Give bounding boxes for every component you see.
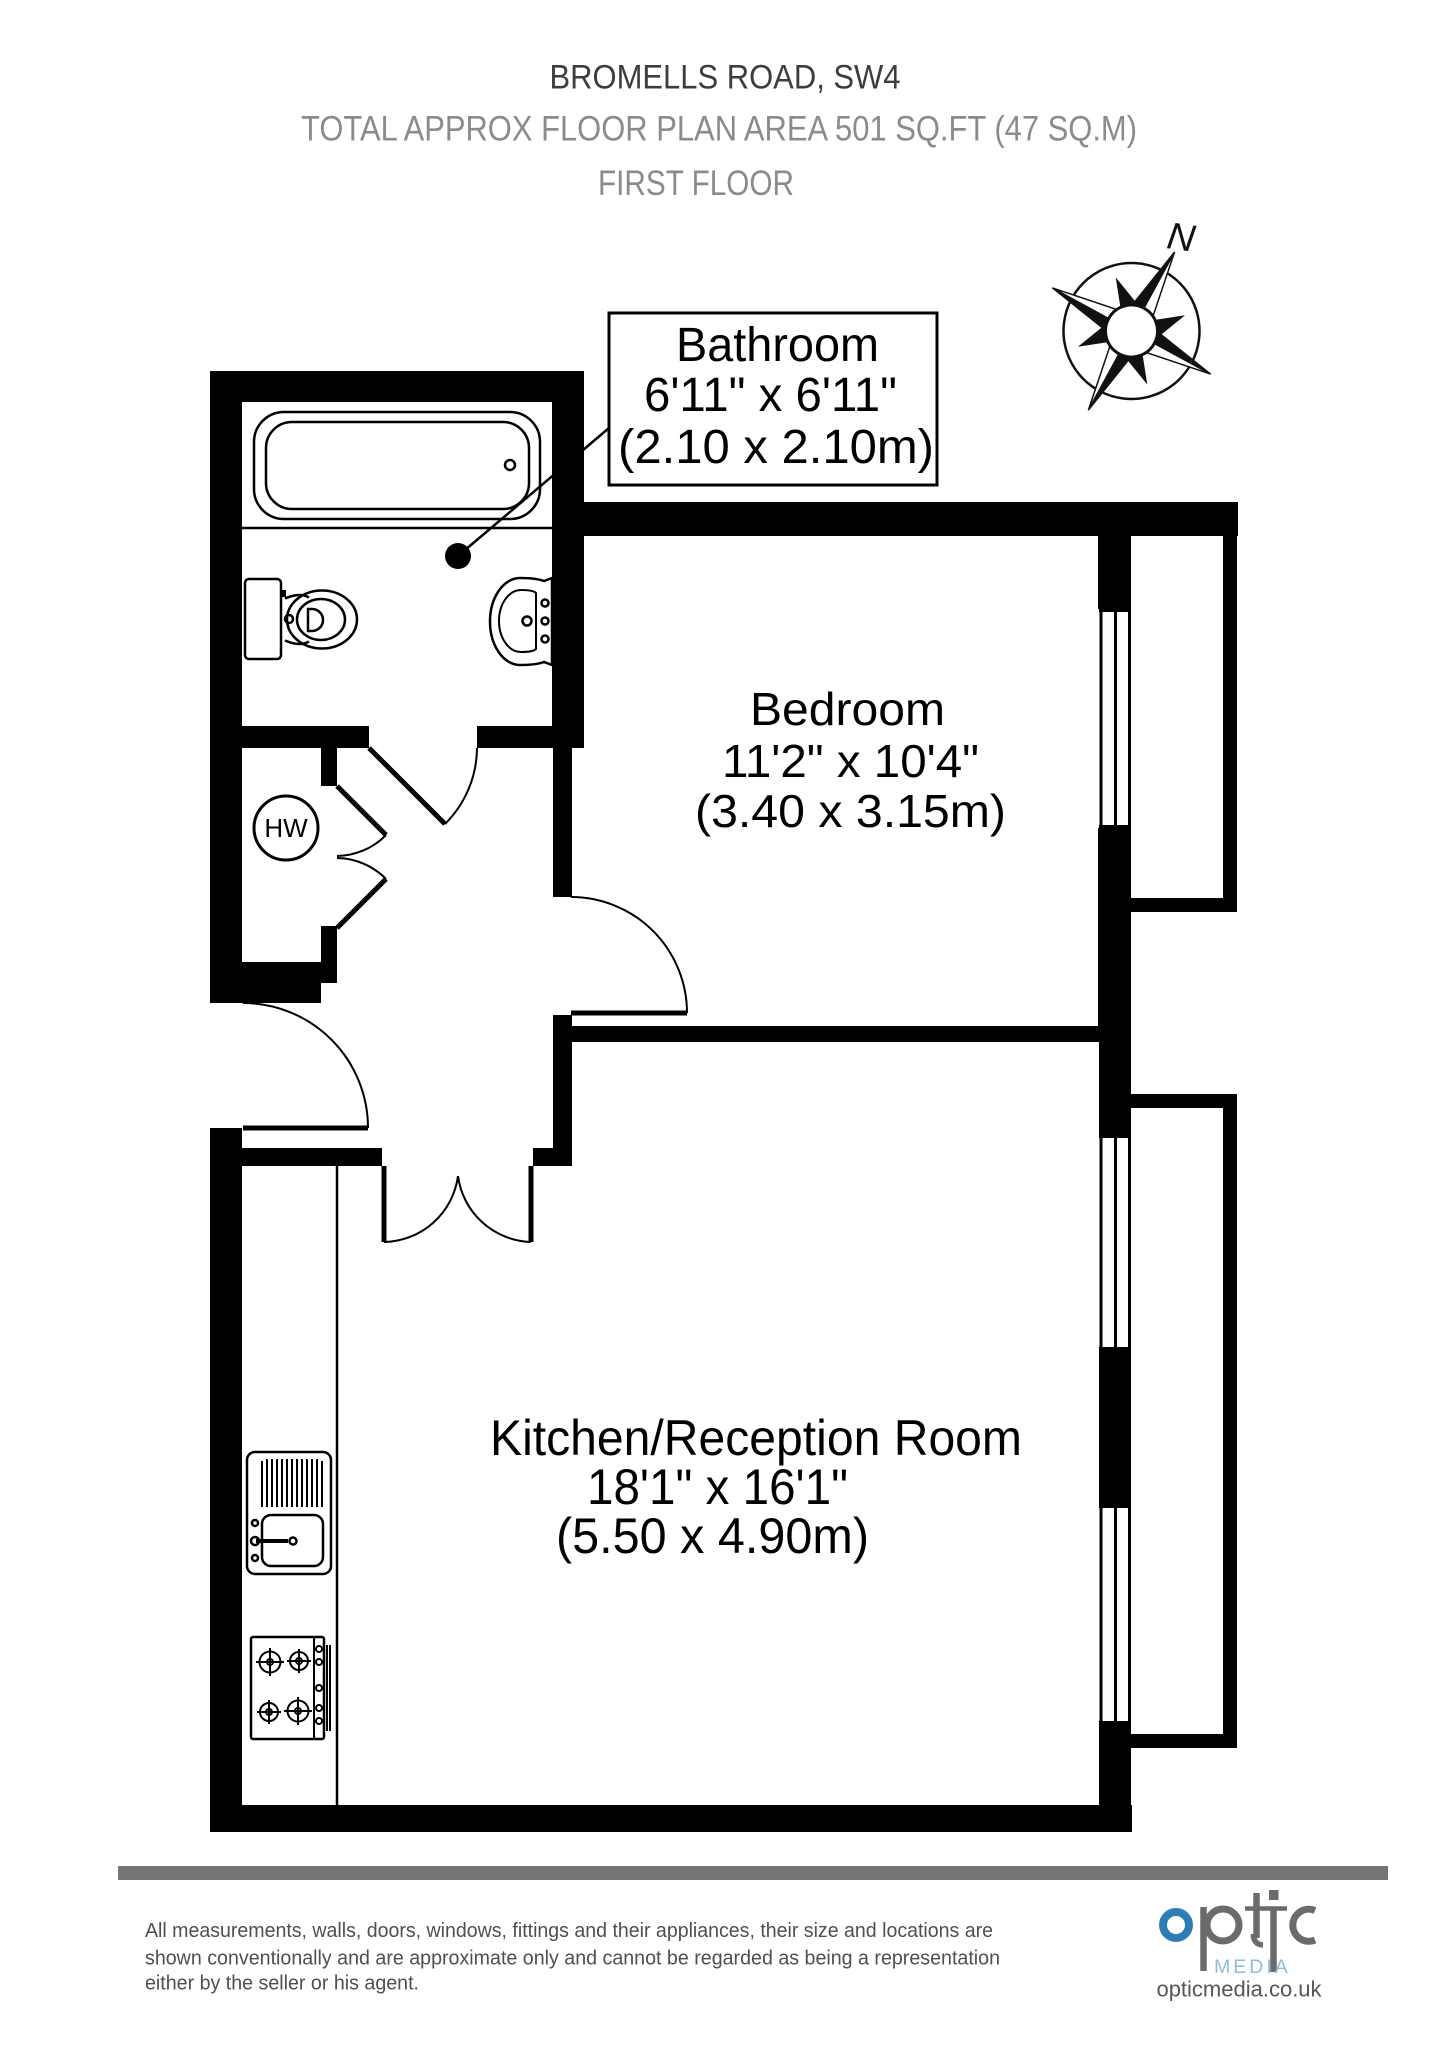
svg-text:TOTAL APPROX FLOOR PLAN AREA 5: TOTAL APPROX FLOOR PLAN AREA 501 SQ.FT (… [301,110,1137,149]
svg-text:opticmedia.co.uk: opticmedia.co.uk [1156,1977,1322,2002]
svg-text:BROMELLS ROAD, SW4: BROMELLS ROAD, SW4 [550,59,901,97]
svg-text:(3.40 x 3.15m): (3.40 x 3.15m) [695,785,1006,837]
svg-text:(5.50 x 4.90m): (5.50 x 4.90m) [556,1508,869,1564]
svg-text:11'2" x 10'4": 11'2" x 10'4" [722,735,979,787]
svg-text:N: N [1164,215,1198,260]
svg-text:Bedroom: Bedroom [750,683,945,735]
svg-text:(2.10 x 2.10m): (2.10 x 2.10m) [618,421,934,474]
svg-text:FIRST FLOOR: FIRST FLOOR [598,164,794,203]
svg-text:All measurements, walls, doors: All measurements, walls, doors, windows,… [145,1920,993,1942]
svg-text:HW: HW [264,813,308,843]
svg-text:Kitchen/Reception Room: Kitchen/Reception Room [490,1410,1022,1466]
svg-text:either by the seller or his ag: either by the seller or his agent. [145,1973,419,1995]
svg-text:6'11" x 6'11": 6'11" x 6'11" [644,369,897,422]
svg-text:shown conventionally and are a: shown conventionally and are approximate… [145,1948,1000,1970]
svg-text:18'1" x 16'1": 18'1" x 16'1" [587,1459,848,1515]
svg-text:Bathroom: Bathroom [676,319,879,372]
svg-text:MEDIA: MEDIA [1214,1956,1291,1978]
